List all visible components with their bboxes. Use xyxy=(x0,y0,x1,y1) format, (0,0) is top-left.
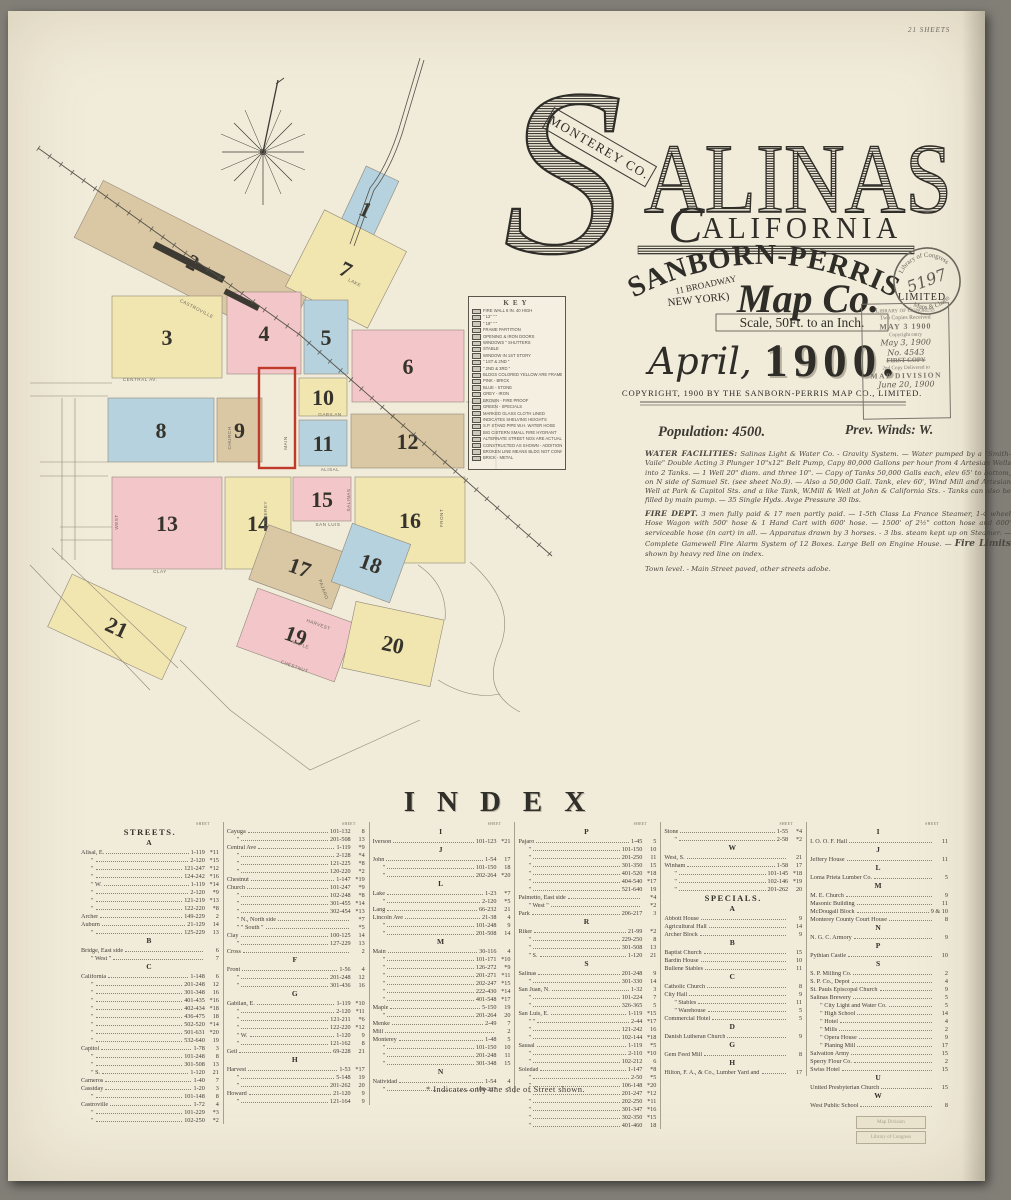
index-entry: " W.1-1209 xyxy=(227,1031,365,1039)
index-title: INDEX xyxy=(0,786,1011,819)
street-label: WEST xyxy=(114,514,119,529)
key-symbol-icon xyxy=(472,456,481,461)
water-facilities-note: WATER FACILITIES: Salinas Light & Water … xyxy=(645,449,1011,506)
state-text: ALIFORNIA xyxy=(702,210,902,245)
index-entry: "101-2489 xyxy=(373,921,511,929)
index-entry: "202-250*11 xyxy=(518,1097,656,1105)
index-entry: "127-22913 xyxy=(227,939,365,947)
index-letter-header: B xyxy=(81,936,219,946)
paper-edge-shadow xyxy=(962,11,985,1181)
sheet-number: 6 xyxy=(403,354,414,379)
index-entry: Church101-247*9 xyxy=(227,883,365,891)
key-symbol-icon xyxy=(472,443,481,448)
index-entry: Lake1-23*7 xyxy=(373,889,511,897)
key-symbol-icon xyxy=(472,315,481,320)
town-note: Town level. - Main Street paved, other s… xyxy=(645,565,831,573)
key-item: BRICK - METAL xyxy=(472,455,562,461)
index-entry: Riker21-99*2 xyxy=(518,927,656,935)
map-block-3: 3 xyxy=(112,296,222,378)
index-entry: "502-520*14 xyxy=(81,1020,219,1028)
index-entry: Pajaro1-455 xyxy=(518,837,656,845)
index-entry: "201-50813 xyxy=(227,835,365,843)
index-letter-header: S xyxy=(518,959,656,969)
index-entry: "5-14819 xyxy=(227,1073,365,1081)
index-entry: "124-242*16 xyxy=(81,872,219,880)
index-entry: "401-46018 xyxy=(518,1121,656,1129)
street-label: MAIN xyxy=(283,436,288,449)
index-entry: West Public School8 xyxy=(810,1101,948,1109)
index-entry: "401-520*18 xyxy=(518,869,656,877)
index-letter-header: M xyxy=(810,881,948,891)
key-symbol-icon xyxy=(472,449,481,454)
index-entry: Monterey County Court House8 xyxy=(810,915,948,923)
index-letter-header: N xyxy=(810,923,948,933)
index-entry: "101-2247 xyxy=(518,993,656,1001)
key-items: FIRE WALL 6 IN. 40 HIGH" 12" " "" 18" " … xyxy=(472,308,562,462)
index-entry: "301-33014 xyxy=(518,977,656,985)
index-entry: "222-430*14 xyxy=(373,987,511,995)
index-entry: Pythian Castle10 xyxy=(810,951,948,959)
street-label: GABILAN xyxy=(318,412,341,417)
index-entry: "301-50813 xyxy=(518,943,656,951)
index-entry: Maple5-15019 xyxy=(373,1003,511,1011)
index-entry: "120-220*2 xyxy=(227,867,365,875)
index-letter-header: I xyxy=(373,827,511,837)
index-entry: "201-26220 xyxy=(664,885,802,893)
index-entry: "401-435*16 xyxy=(81,996,219,1004)
stamp-number: 5197 xyxy=(904,264,950,296)
key-symbol-icon xyxy=(472,424,481,429)
index-entry: Bullene Stables11 xyxy=(664,964,802,972)
map-block-4: 4 xyxy=(227,292,301,374)
index-entry: Hilton, F. A., & Co., Lumber Yard and Mi… xyxy=(664,1068,802,1076)
index-entry: "201-26420 xyxy=(373,1011,511,1019)
index-entry: "201-24811 xyxy=(373,1051,511,1059)
index-entry: "101-2488 xyxy=(81,1052,219,1060)
map-block-15: 15 xyxy=(293,477,351,521)
map-block-11: 11 xyxy=(299,420,347,466)
fire-limits-line xyxy=(259,368,295,468)
index-entry: Catholic Church8 xyxy=(664,982,802,990)
index-columns: SHEETSTREETS.AAlisal, E.1-119*11"2-120*1… xyxy=(78,822,952,1129)
index-entry: McDougall Block9 & 10 xyxy=(810,907,948,915)
street-label: CENTRAL AV. xyxy=(123,377,157,382)
index-letter-header: J xyxy=(810,845,948,855)
index-entry: "102-2126 xyxy=(518,1057,656,1065)
index-letter-header: W xyxy=(664,843,802,853)
key-symbol-icon xyxy=(472,328,481,333)
street-label: ALISAL xyxy=(321,467,340,472)
key-symbol-icon xyxy=(472,347,481,352)
index-entry: " Planing Mill17 xyxy=(810,1041,948,1049)
sheet-number: 15 xyxy=(311,487,333,512)
key-symbol-icon xyxy=(472,341,481,346)
index-entry: John1-5417 xyxy=(373,855,511,863)
scanned-sanborn-map-sheet: { "page": { "sheets_note": "21 SHEETS" }… xyxy=(0,0,1011,1200)
index-letter-header: P xyxy=(810,941,948,951)
index-entry: Lang66-23221 xyxy=(373,905,511,913)
map-block-21: 21 xyxy=(48,574,187,680)
index-entry: " West "*2 xyxy=(518,901,656,909)
index-letter-header: D xyxy=(664,1022,802,1032)
index-entry: Stone1-55*4 xyxy=(664,827,802,835)
sheet-number: 8 xyxy=(156,418,167,443)
index-entry: S. P. Co., Depot4 xyxy=(810,977,948,985)
index-entry: " " South "*5 xyxy=(227,923,365,931)
index-letter-header: H xyxy=(227,1055,365,1065)
map-block-9: 9 xyxy=(217,398,262,462)
index-entry: "2-50*5 xyxy=(518,1073,656,1081)
index-entry: " Opera House9 xyxy=(810,1033,948,1041)
index-letter-header: A xyxy=(664,904,802,914)
index-entry: "101-145*18 xyxy=(664,869,802,877)
key-symbol-icon xyxy=(472,379,481,384)
sheet-count-note: 21 SHEETS xyxy=(908,26,950,34)
key-symbol-icon xyxy=(472,417,481,422)
index-entry: "229-2508 xyxy=(518,935,656,943)
index-entry: Palmetto, East side*4 xyxy=(518,893,656,901)
index-entry: Salinas Brewery5 xyxy=(810,993,948,1001)
map-key: KEY FIRE WALL 6 IN. 40 HIGH" 12" " "" 18… xyxy=(468,296,566,470)
index-letter-header: L xyxy=(810,863,948,873)
index-entry: "301-50813 xyxy=(81,1060,219,1068)
index-entry: Baptist Church15 xyxy=(664,948,802,956)
index-entry: Chestnut1-147*19 xyxy=(227,875,365,883)
index-entry: "402-434*18 xyxy=(81,1004,219,1012)
index-entry: " S.1-12021 xyxy=(81,1068,219,1076)
index-entry: Sperry Flour Co.2 xyxy=(810,1057,948,1065)
index-column-2: SHEETCayuga101-1328"201-50813Central Ave… xyxy=(224,822,370,1105)
index-entry: "436-47518 xyxy=(81,1012,219,1020)
index-entry: "101-229*3 xyxy=(81,1108,219,1116)
map-block-20: 20 xyxy=(342,601,444,686)
index-entry: "301-347*16 xyxy=(518,1105,656,1113)
street-label: FRONT xyxy=(439,509,444,527)
index-entry: Loma Prieta Lumber Co.5 xyxy=(810,873,948,881)
index-letter-header: N xyxy=(373,1067,511,1077)
index-entry: " W.1-119*14 xyxy=(81,880,219,888)
sheet-number: 16 xyxy=(399,508,421,533)
index-entry: Carneros1-407 xyxy=(81,1076,219,1084)
edition-month: April, xyxy=(645,340,752,383)
index-entry: "121-24216 xyxy=(518,1025,656,1033)
index-column-4: SHEETPPajaro1-455"101-15010"201-25011"30… xyxy=(515,822,661,1129)
index-entry: California1-1486 xyxy=(81,972,219,980)
index-entry: "2-110*10 xyxy=(518,1049,656,1057)
key-symbol-icon xyxy=(472,385,481,390)
key-symbol-icon xyxy=(472,392,481,397)
index-entry: " Warehouse5 xyxy=(664,1006,802,1014)
index-entry: Cross2 xyxy=(227,947,365,955)
index-entry: Winham1-5817 xyxy=(664,861,802,869)
key-symbol-icon xyxy=(472,309,481,314)
map-block-5: 5 xyxy=(304,300,348,374)
index-entry: "2-120*15 xyxy=(81,856,219,864)
index-entry: Bridge, East side6 xyxy=(81,946,219,954)
key-symbol-icon xyxy=(472,353,481,358)
index-section-title: SPECIALS. xyxy=(664,893,802,904)
index-entry: Main30-1164 xyxy=(373,947,511,955)
index-entry: M. E. Church9 xyxy=(810,891,948,899)
index-entry: Iverson101-123*21 xyxy=(373,837,511,845)
index-entry: Park206-2173 xyxy=(518,909,656,917)
index-entry: Danish Lutheran Church9 xyxy=(664,1032,802,1040)
index-entry: N. G. C. Armory9 xyxy=(810,933,948,941)
index-letter-header: G xyxy=(664,1040,802,1050)
index-letter-header: R xyxy=(518,917,656,927)
key-symbol-icon xyxy=(472,411,481,416)
index-entry: Menke2-497 xyxy=(373,1019,511,1027)
index-entry: "201-24812 xyxy=(227,973,365,981)
key-symbol-icon xyxy=(472,360,481,365)
index-entry: "302-350*15 xyxy=(518,1113,656,1121)
index-entry: "102-248*8 xyxy=(227,891,365,899)
index-entry: St. Pauls Episcopal Church9 xyxy=(810,985,948,993)
index-entry: Soledad1-147*8 xyxy=(518,1065,656,1073)
state-initial: C xyxy=(668,197,704,254)
index-entry: "121-1628 xyxy=(227,1039,365,1047)
index-entry: Harvest1-53*17 xyxy=(227,1065,365,1073)
key-symbol-icon xyxy=(472,398,481,403)
index-entry: City Hall9 xyxy=(664,990,802,998)
index-entry: "202-247*15 xyxy=(373,979,511,987)
index-entry: "521-64019 xyxy=(518,885,656,893)
key-symbol-icon xyxy=(472,430,481,435)
index-letter-header: P xyxy=(518,827,656,837)
title-initial: S xyxy=(504,41,623,304)
index-entry: "101-15010 xyxy=(373,1043,511,1051)
index-letter-header: A xyxy=(81,838,219,848)
index-entry: West, S.21 xyxy=(664,853,802,861)
index-entry: " S.1-12021 xyxy=(518,951,656,959)
index-entry: Cayuga101-1328 xyxy=(227,827,365,835)
key-symbol-icon xyxy=(472,366,481,371)
index-entry: "102-144*18 xyxy=(518,1033,656,1041)
prevailing-winds-stat: Prev. Winds: W. xyxy=(845,422,933,438)
index-entry: Clay100-12514 xyxy=(227,931,365,939)
index-column-1: SHEETSTREETS.AAlisal, E.1-119*11"2-120*1… xyxy=(78,822,224,1124)
index-entry: "2-120*9 xyxy=(81,888,219,896)
index-entry: "121-1649 xyxy=(227,1097,365,1105)
index-entry: Alisal, E.1-119*11 xyxy=(81,848,219,856)
key-symbol-icon xyxy=(472,405,481,410)
index-entry: " High School14 xyxy=(810,1009,948,1017)
sheet-number: 11 xyxy=(313,431,334,456)
index-entry: San Juan, N.1-323 xyxy=(518,985,656,993)
index-entry: "201-25011 xyxy=(518,853,656,861)
index-letter-header: G xyxy=(227,989,365,999)
index-entry: "121-211*6 xyxy=(227,1015,365,1023)
index-entry: "326-3655 xyxy=(518,1001,656,1009)
sheet-number: 4 xyxy=(259,321,270,346)
index-letter-header: M xyxy=(373,937,511,947)
population-stat: Population: 4500. xyxy=(658,424,765,441)
index-letter-header: B xyxy=(664,938,802,948)
index-entry: Masonic Building11 xyxy=(810,899,948,907)
index-entry: Jeffery House11 xyxy=(810,855,948,863)
index-entry: "122-220*12 xyxy=(227,1023,365,1031)
index-entry: Central Ave1-119*9 xyxy=(227,843,365,851)
index-column-6: SHEETII. O. O. F. Hall11JJeffery House11… xyxy=(807,822,952,1109)
index-entry: Front1-564 xyxy=(227,965,365,973)
index-entry: Swiss Hotel15 xyxy=(810,1065,948,1073)
index-entry: " City Light and Water Co.5 xyxy=(810,1001,948,1009)
index-entry: "126-272*9 xyxy=(373,963,511,971)
key-symbol-icon xyxy=(472,373,481,378)
index-letter-header: J xyxy=(373,845,511,855)
index-entry: S. P. Milling Co.2 xyxy=(810,969,948,977)
index-entry: "301-43616 xyxy=(227,981,365,989)
index-entry: "301-34815 xyxy=(373,1059,511,1067)
index-letter-header: C xyxy=(81,962,219,972)
index-column-5: SHEETStone1-55*4"2-58*2WWest, S.21Winham… xyxy=(661,822,807,1076)
index-entry: Bardin House10 xyxy=(664,956,802,964)
scale-text: Scale, 50Ft. to an Inch. xyxy=(740,315,865,330)
index-letter-header: H xyxy=(664,1058,802,1068)
street-label: SAN LUIS xyxy=(316,522,341,527)
index-section-title: STREETS. xyxy=(81,827,219,838)
index-entry: San Luis, E.1-119*15 xyxy=(518,1009,656,1017)
index-entry: "102-250*2 xyxy=(81,1116,219,1124)
index-column-3: SHEETIIverson101-123*21JJohn1-5417"101-1… xyxy=(370,822,516,1093)
index-entry: Castroville1-724 xyxy=(81,1100,219,1108)
fire-dept-note: FIRE DEPT. 3 men fully paid & 17 men par… xyxy=(645,509,1011,559)
index-entry: " West "7 xyxy=(81,954,219,962)
sheet-number: 3 xyxy=(162,325,173,350)
index-entry: Commercial Hotel5 xyxy=(664,1014,802,1022)
index-entry: "121-225*8 xyxy=(227,859,365,867)
index-entry: "201-271*11 xyxy=(373,971,511,979)
map-block-8: 8 xyxy=(108,398,214,462)
street-label: MONTEREY xyxy=(263,501,268,531)
index-entry: Gabilan, E.1-119*10 xyxy=(227,999,365,1007)
street-label: SALINAS xyxy=(346,489,351,512)
index-entry: "101-171*10 xyxy=(373,955,511,963)
index-entry: "301-35015 xyxy=(518,861,656,869)
index-entry: "301-34816 xyxy=(81,988,219,996)
index-letter-header: S xyxy=(810,959,948,969)
index-entry: "301-455*14 xyxy=(227,899,365,907)
index-entry: " Stables11 xyxy=(664,998,802,1006)
index-entry: "532-64019 xyxy=(81,1036,219,1044)
index-entry: "101-15010 xyxy=(518,845,656,853)
index-entry: Sausal1-119*5 xyxy=(518,1041,656,1049)
index-entry: "122-220*8 xyxy=(81,904,219,912)
street-label: CHURCH xyxy=(227,427,232,450)
index-entry: Monterey1-485 xyxy=(373,1035,511,1043)
index-entry: " "2-44*17 xyxy=(518,1017,656,1025)
compass-rose-icon xyxy=(221,78,305,205)
index-entry: Auburn21-12914 xyxy=(81,920,219,928)
index-entry: "202-264*20 xyxy=(373,871,511,879)
index-entry: "2-120*11 xyxy=(227,1007,365,1015)
sheet-number: 13 xyxy=(156,511,178,536)
key-symbol-icon xyxy=(472,437,481,442)
index-entry: Mill2 xyxy=(373,1027,511,1035)
index-entry: Archer149-2292 xyxy=(81,912,219,920)
index-entry: Abbott House9 xyxy=(664,914,802,922)
index-entry: "121-219*13 xyxy=(81,896,219,904)
index-entry: Gem Feed Mill8 xyxy=(664,1050,802,1058)
index-entry: Salvation Army15 xyxy=(810,1049,948,1057)
index-entry: "201-50814 xyxy=(373,929,511,937)
map-division-stamp: Map Division Library of Congress xyxy=(856,1116,926,1146)
key-symbol-icon xyxy=(472,334,481,339)
copyright-receipt-stamp: Library of Congress Two Copies Received … xyxy=(861,302,951,420)
sheet-number: 10 xyxy=(312,385,334,410)
index-letter-header: I xyxy=(810,827,948,837)
index-entry: Lincoln Ave21-384 xyxy=(373,913,511,921)
sheet-number: 9 xyxy=(234,418,245,443)
index-entry: "2-120*5 xyxy=(373,897,511,905)
index-entry: "101-15018 xyxy=(373,863,511,871)
key-symbol-icon xyxy=(472,321,481,326)
index-entry: "2-128*4 xyxy=(227,851,365,859)
index-entry: Archer Block9 xyxy=(664,930,802,938)
index-letter-header: F xyxy=(227,955,365,965)
index-entry: "404-540*17 xyxy=(518,877,656,885)
index-footnote: * Indicates only one side of Street show… xyxy=(0,1084,1011,1094)
index-entry: " Hotel4 xyxy=(810,1017,948,1025)
index-entry: "201-24812 xyxy=(81,980,219,988)
index-entry: "125-22913 xyxy=(81,928,219,936)
index-entry: Capitol1-783 xyxy=(81,1044,219,1052)
index-entry: "2-58*2 xyxy=(664,835,802,843)
index-entry: Agricultural Hall14 xyxy=(664,922,802,930)
index-entry: "121-247*12 xyxy=(81,864,219,872)
sheet-number: 5 xyxy=(321,325,332,350)
index-entry: "302-454*13 xyxy=(227,907,365,915)
index-letter-header: U xyxy=(810,1073,948,1083)
index-entry: "501-631*20 xyxy=(81,1028,219,1036)
index-entry: "102-146*19 xyxy=(664,877,802,885)
street-label: CLAY xyxy=(153,569,167,574)
index-letter-header: C xyxy=(664,972,802,982)
map-block-6: 6 xyxy=(352,330,464,402)
index-entry: I. O. O. F. Hall11 xyxy=(810,837,948,845)
index-entry: " Mills2 xyxy=(810,1025,948,1033)
index-letter-header: L xyxy=(373,879,511,889)
map-block-13: 13 xyxy=(112,477,222,569)
map-block-10: 10 xyxy=(299,378,347,416)
key-title: KEY xyxy=(472,299,562,308)
index-entry: Salinas201-2489 xyxy=(518,969,656,977)
map-block-12: 12 xyxy=(351,414,464,468)
index-entry: " N., North side*7 xyxy=(227,915,365,923)
index-entry: "401-548*17 xyxy=(373,995,511,1003)
index-entry: Geil69-22821 xyxy=(227,1047,365,1055)
